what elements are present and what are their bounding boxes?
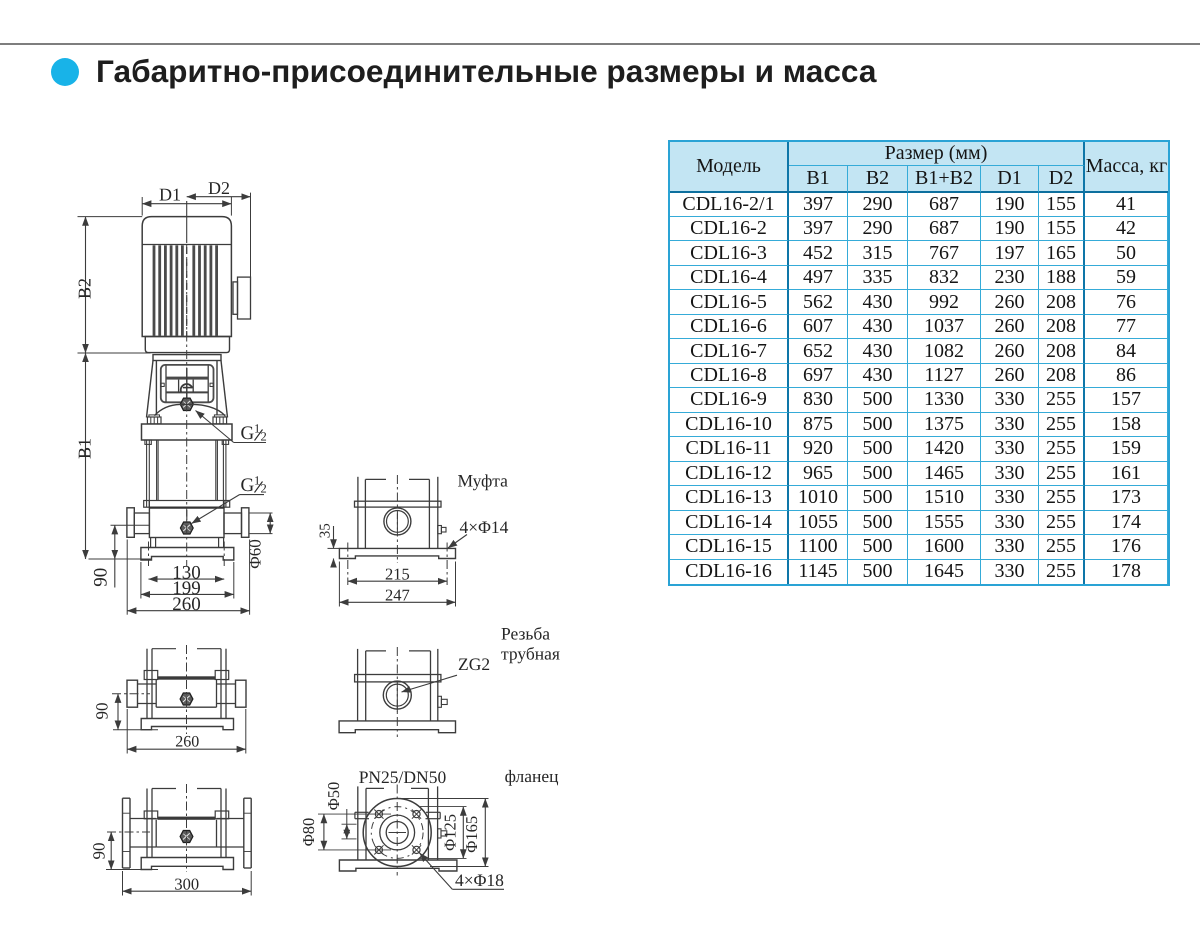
svg-text:260: 260 [175,733,199,750]
svg-text:215: 215 [385,564,410,583]
svg-text:PN25/DN50: PN25/DN50 [359,767,447,787]
svg-text:Φ125: Φ125 [441,814,460,851]
svg-text:4×Φ18: 4×Φ18 [455,870,504,890]
svg-text:Φ165: Φ165 [462,816,481,853]
svg-text:D1: D1 [159,185,181,205]
svg-text:Φ50: Φ50 [324,782,343,811]
svg-text:260: 260 [172,594,201,615]
svg-text:247: 247 [385,585,410,604]
svg-text:4×Φ14: 4×Φ14 [460,517,509,537]
svg-text:300: 300 [174,875,199,894]
svg-text:Φ80: Φ80 [299,818,318,847]
svg-text:фланец: фланец [505,766,559,786]
svg-text:B1: B1 [75,438,95,459]
svg-text:G: G [241,475,255,496]
svg-text:Φ60: Φ60 [246,539,265,568]
svg-text:35: 35 [317,523,333,538]
svg-text:G: G [241,423,255,444]
svg-text:90: 90 [93,703,112,720]
svg-text:2: 2 [261,430,267,444]
svg-text:D2: D2 [208,178,230,198]
svg-text:трубная: трубная [501,644,560,664]
svg-text:2: 2 [261,482,267,496]
svg-text:90: 90 [90,843,109,860]
svg-text:ZG2: ZG2 [458,654,490,674]
svg-text:90: 90 [90,568,111,587]
svg-text:B2: B2 [75,278,95,299]
svg-text:Муфта: Муфта [458,471,509,491]
svg-text:Резьба: Резьба [501,624,550,644]
